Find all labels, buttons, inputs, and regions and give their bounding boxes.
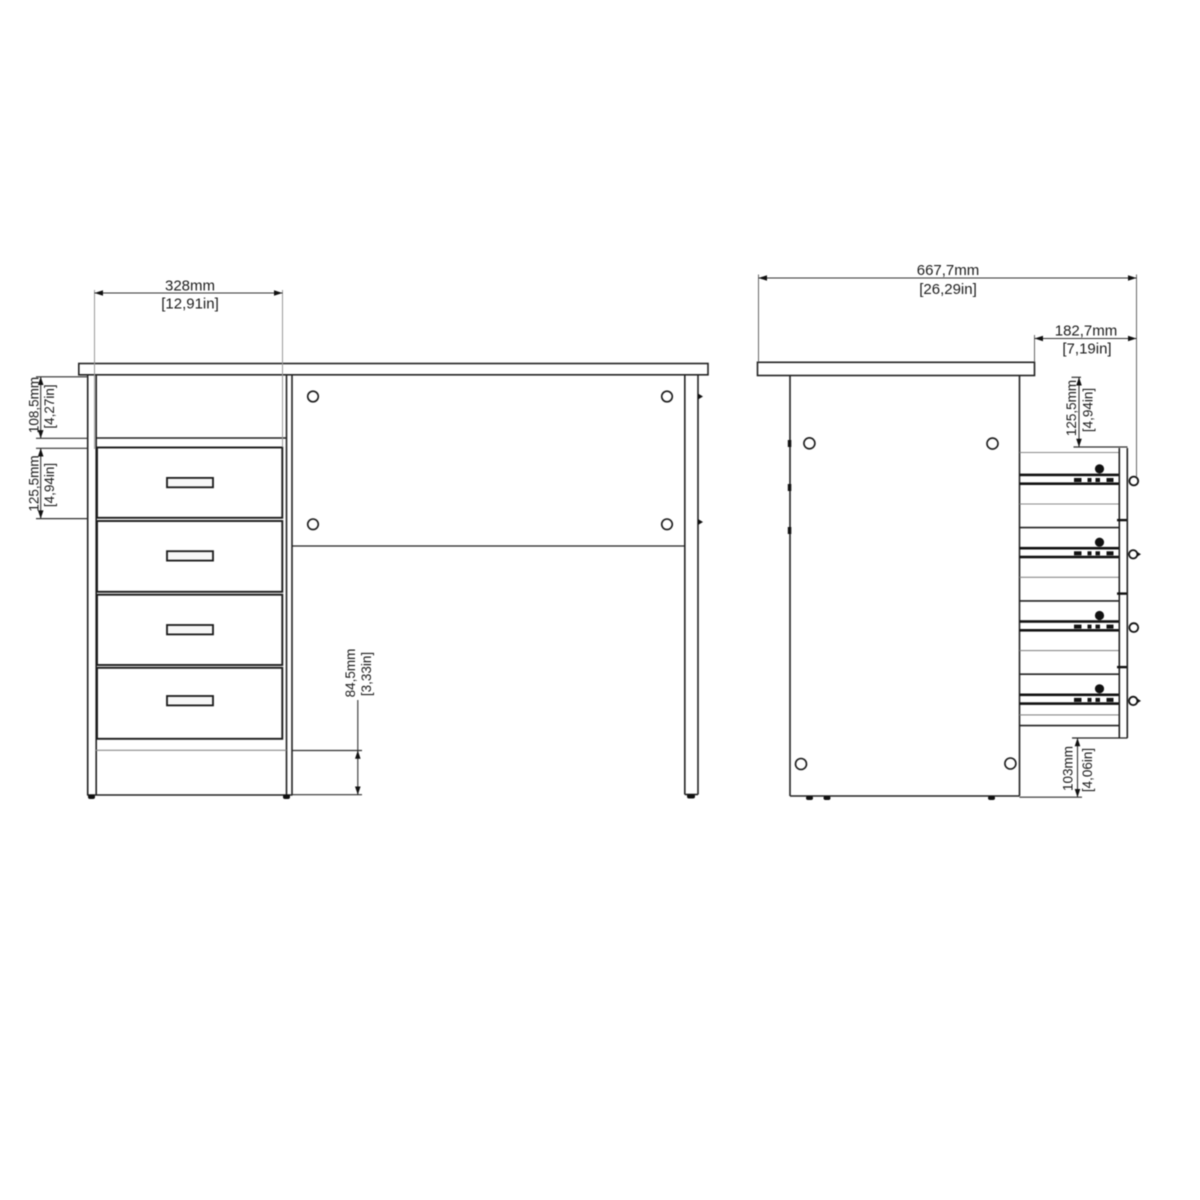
svg-text:[7,19in]: [7,19in] — [1062, 341, 1111, 358]
svg-text:84,5mm: 84,5mm — [343, 649, 358, 698]
svg-text:[26,29in]: [26,29in] — [919, 281, 977, 298]
svg-text:108,5mm: 108,5mm — [27, 377, 42, 433]
svg-text:667,7mm: 667,7mm — [917, 262, 980, 279]
svg-text:[3,33in]: [3,33in] — [359, 652, 374, 696]
svg-text:103mm: 103mm — [1061, 746, 1076, 791]
svg-text:[4,27in]: [4,27in] — [42, 384, 57, 428]
svg-text:[4,94in]: [4,94in] — [42, 463, 57, 507]
svg-text:125,5mm: 125,5mm — [27, 455, 42, 511]
svg-text:125,5mm: 125,5mm — [1064, 380, 1079, 436]
svg-text:[4,94in]: [4,94in] — [1081, 388, 1096, 432]
svg-text:[12,91in]: [12,91in] — [161, 296, 219, 313]
svg-text:[4,06in]: [4,06in] — [1080, 748, 1095, 792]
svg-text:328mm: 328mm — [165, 278, 215, 295]
svg-text:182,7mm: 182,7mm — [1055, 323, 1118, 340]
